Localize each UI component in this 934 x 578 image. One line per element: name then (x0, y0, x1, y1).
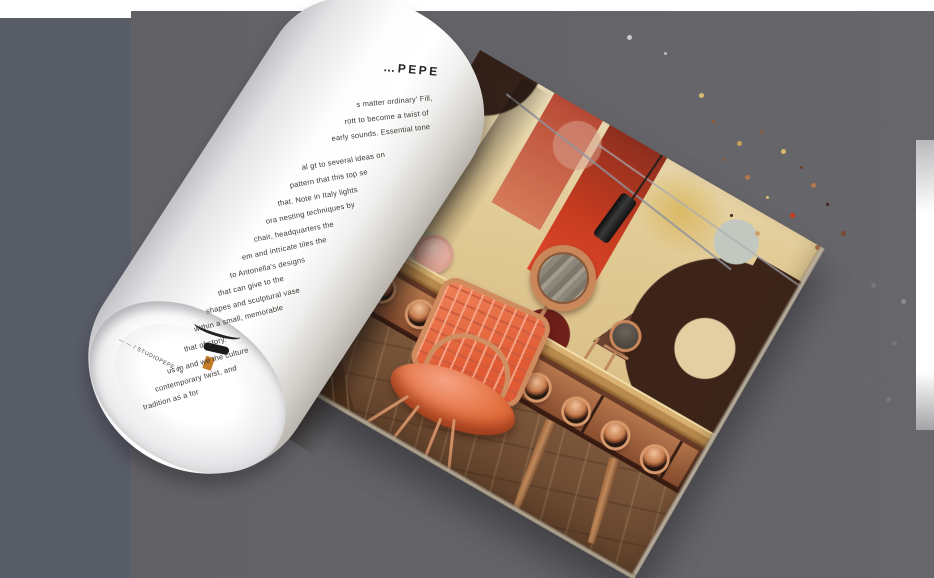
background-top-left-block (0, 0, 131, 18)
page-roll-curl (92, 298, 284, 474)
page-roll-end: — — / STUDIOPEPE Ca (57, 266, 318, 509)
background-top-strip (0, 0, 934, 11)
paint-spray-speckles (0, 0, 3, 3)
magazine-mockup-stage: — — / STUDIOPEPE Ca …PEPE s matter ordin… (0, 0, 934, 578)
background-right-column (916, 140, 934, 430)
